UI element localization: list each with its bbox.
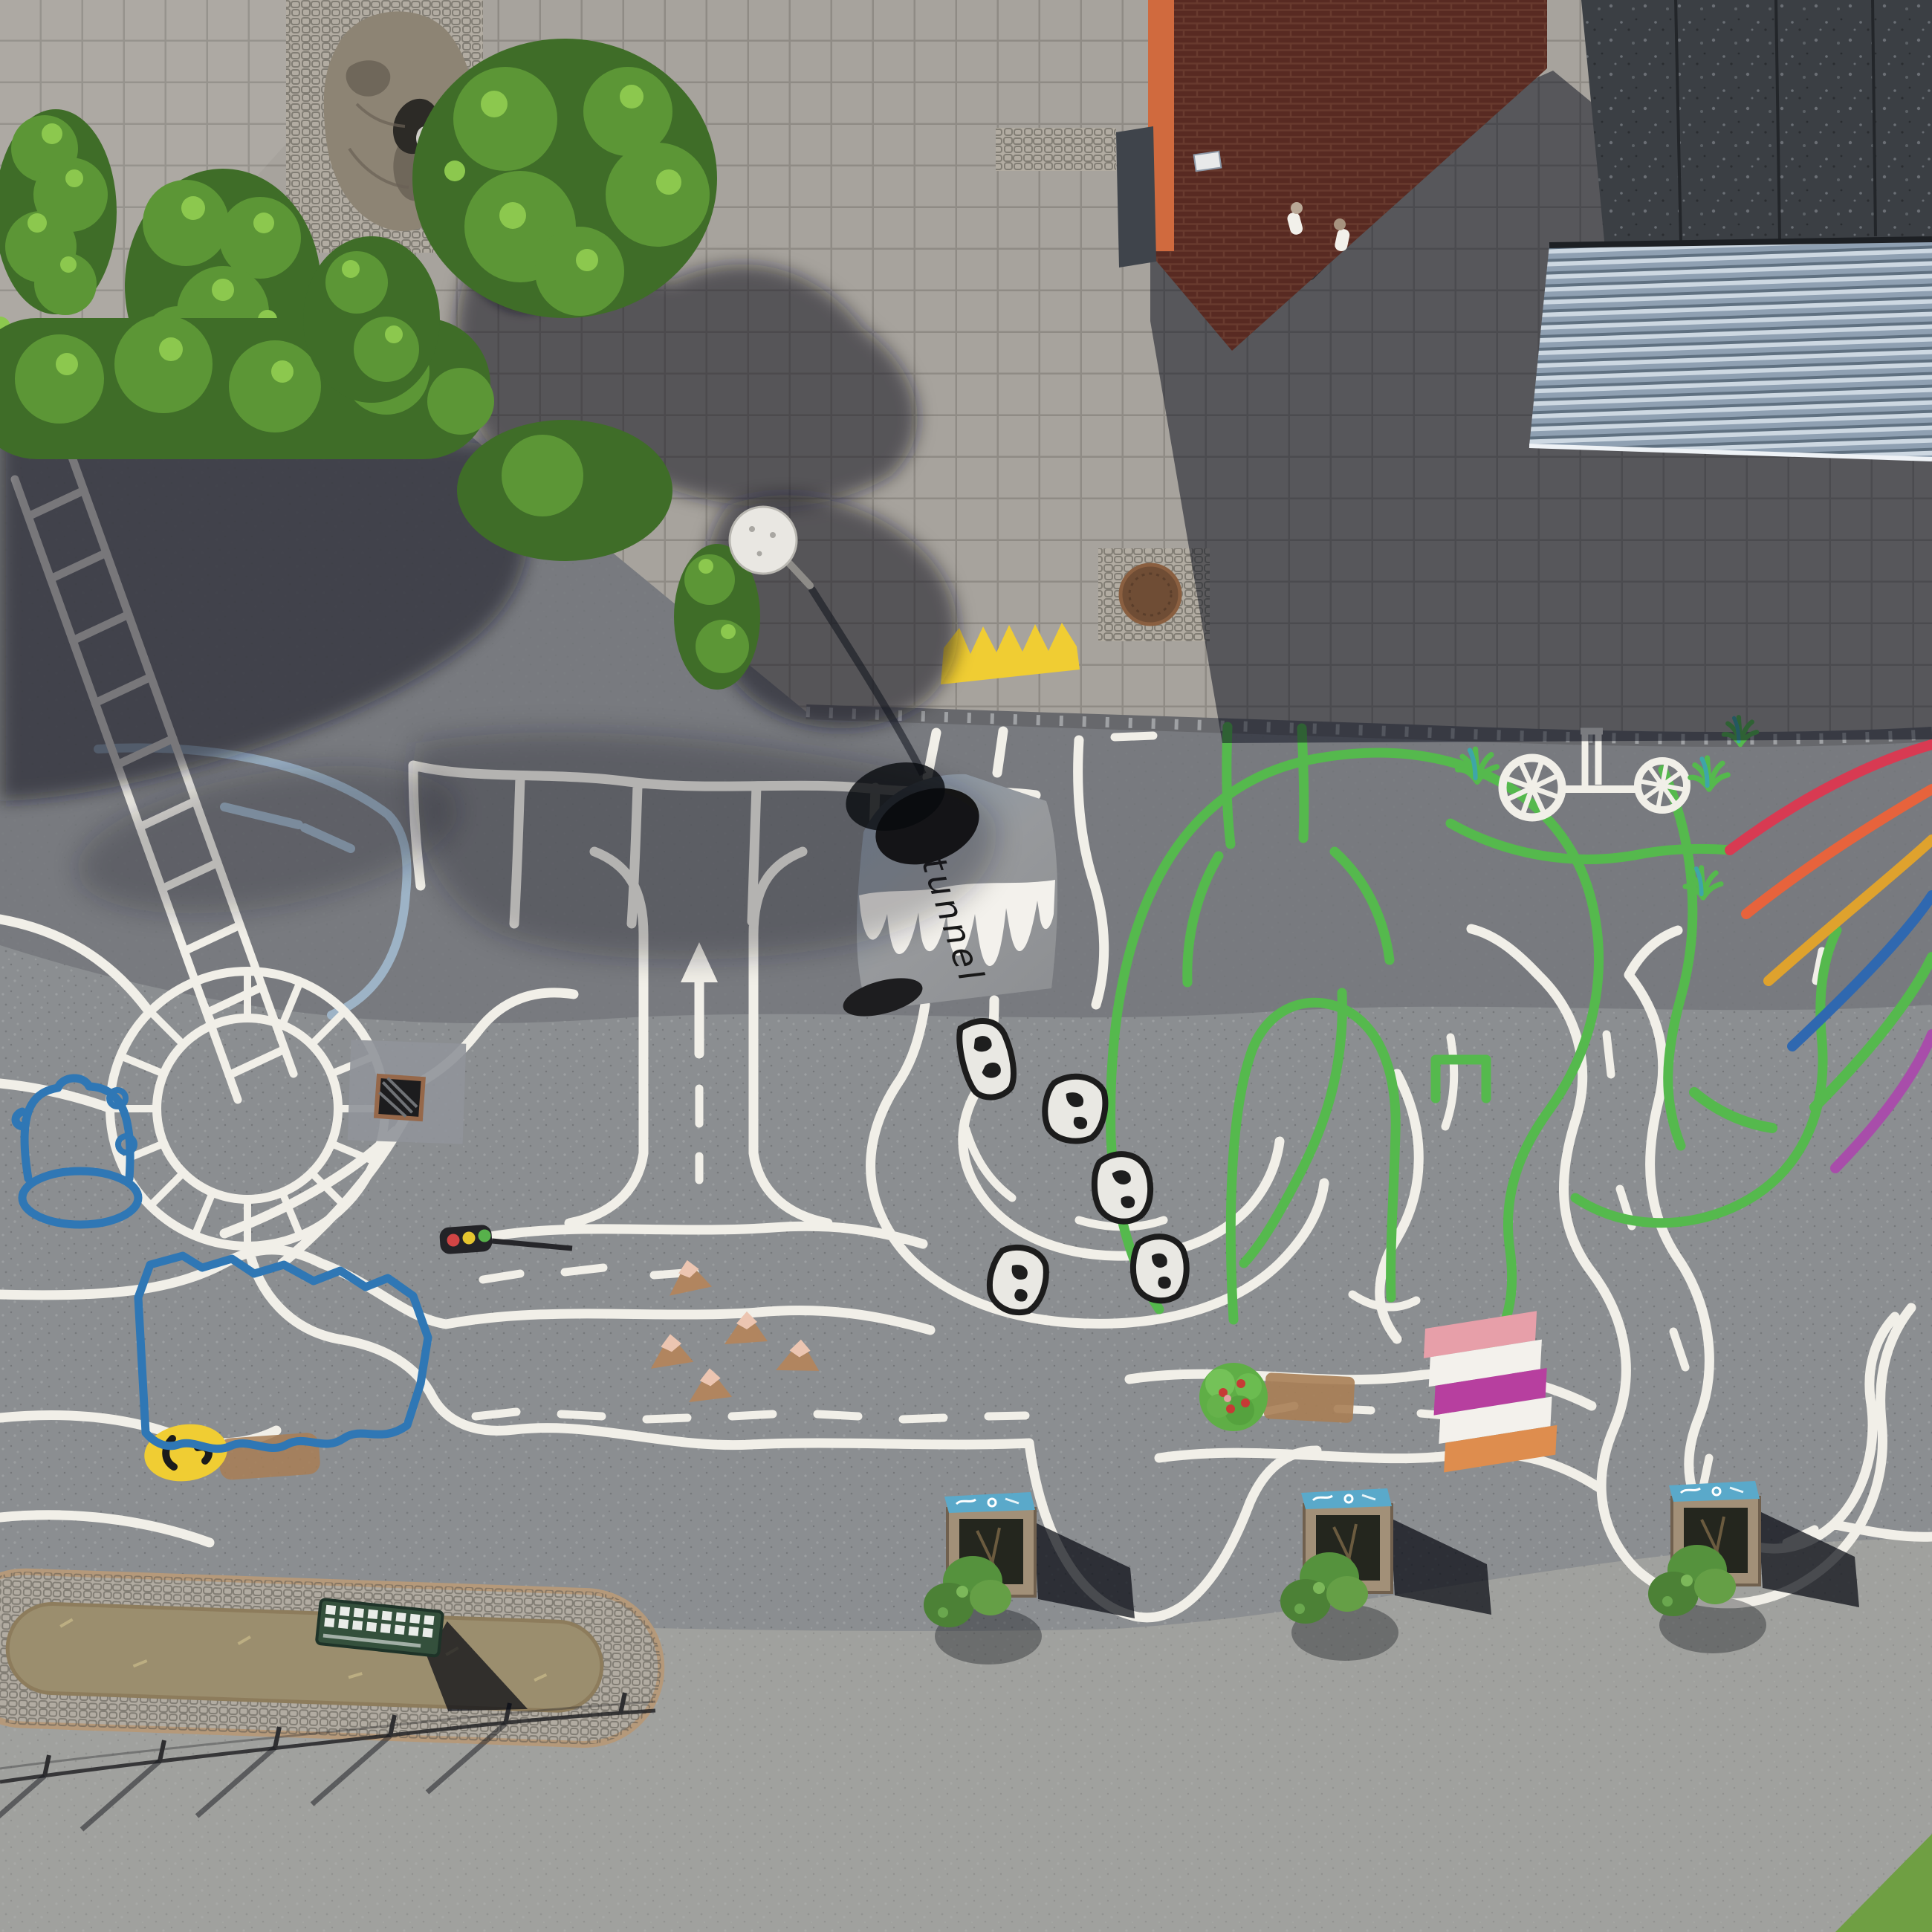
traffic-light-yellow bbox=[463, 1232, 476, 1245]
small-tree bbox=[303, 236, 440, 403]
dark-pillar bbox=[1116, 126, 1156, 268]
drain-grate bbox=[348, 1040, 467, 1144]
lamp-disc bbox=[730, 507, 797, 574]
person-head bbox=[1291, 202, 1303, 214]
traffic-light-green bbox=[479, 1230, 491, 1242]
cobblestone-strip bbox=[0, 1569, 664, 1747]
traffic-light-red bbox=[447, 1234, 460, 1247]
louvered-canopy bbox=[1529, 239, 1932, 459]
aerial-playground-photo: tunnel bbox=[0, 0, 1932, 1932]
dirt-patch bbox=[1263, 1372, 1355, 1423]
person-head bbox=[1334, 218, 1346, 230]
photo-canvas: tunnel bbox=[0, 0, 1932, 1932]
wall-sign bbox=[1194, 152, 1222, 172]
